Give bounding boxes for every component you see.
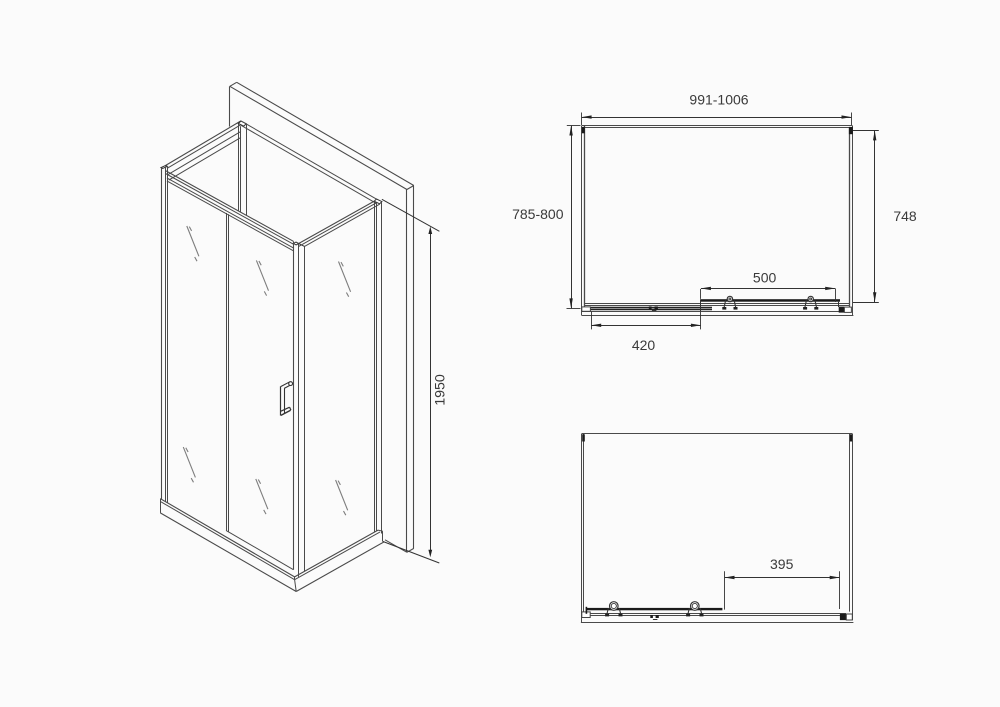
svg-text:785-800: 785-800 bbox=[512, 206, 564, 222]
svg-text:1950: 1950 bbox=[433, 374, 449, 406]
svg-text:748: 748 bbox=[893, 208, 917, 224]
svg-text:395: 395 bbox=[770, 556, 794, 572]
svg-text:500: 500 bbox=[753, 270, 777, 286]
svg-text:991-1006: 991-1006 bbox=[689, 91, 748, 107]
svg-text:420: 420 bbox=[632, 337, 656, 353]
